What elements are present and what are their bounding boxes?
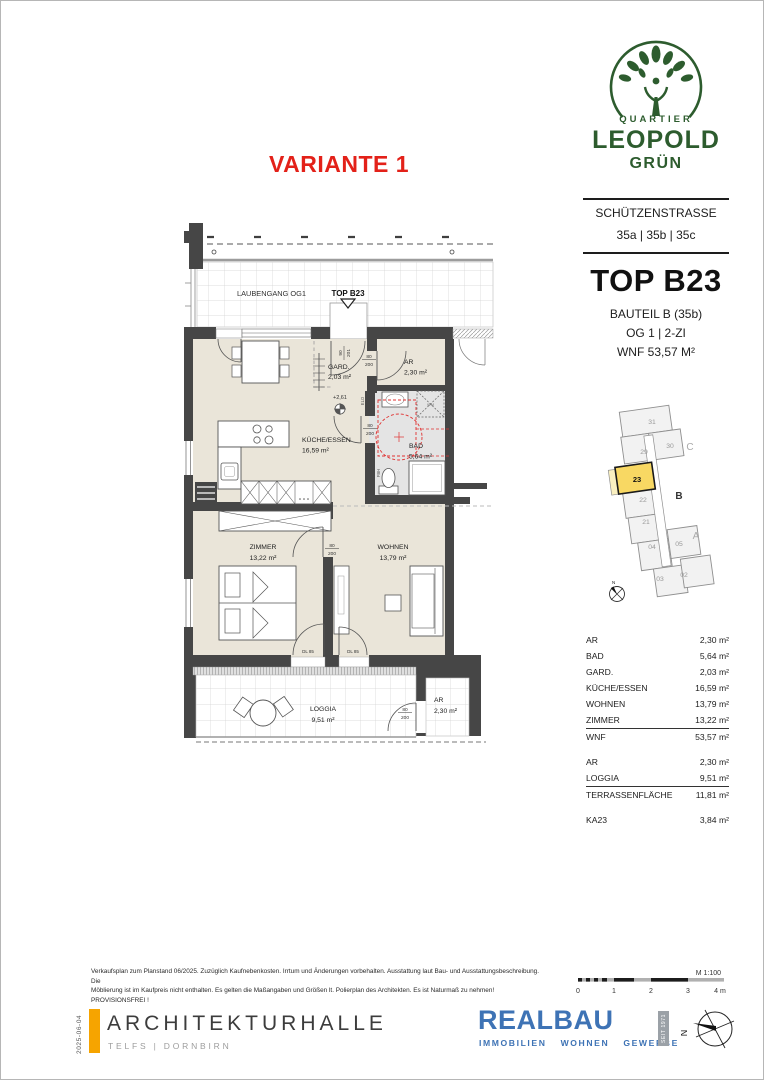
window-top (242, 329, 311, 337)
divider-top (583, 198, 729, 200)
zimmer-label: ZIMMER (250, 544, 277, 551)
entry-niche (330, 303, 367, 339)
logo-text-leopold: LEOPOLD (592, 126, 720, 154)
dl85-label-1: DL 85 (302, 649, 314, 654)
plan-date: 2025-06-04 (76, 1015, 83, 1054)
ar-bottom-area: 2,30 m² (434, 708, 458, 715)
logo-text-quartier: QUARTIER (619, 114, 693, 125)
level-label: +2,61 (333, 395, 347, 401)
svg-text:200: 200 (365, 362, 373, 368)
disclaimer-line-2: Möblierung ist im Kaufpreis nicht enthal… (91, 986, 543, 1005)
row-value: 2,30 m² (700, 632, 729, 648)
table-row: WOHNEN13,79 m² (586, 696, 729, 712)
row-value: 13,22 m² (695, 712, 729, 728)
row-label: LOGGIA (586, 770, 619, 786)
exterior-wall-top-left (184, 223, 203, 269)
row-label: WOHNEN (586, 696, 625, 712)
ar-top-label: AR (404, 359, 414, 366)
row-value: 5,64 m² (700, 648, 729, 664)
round-table-icon (250, 700, 276, 726)
street-name: SCHÜTZENSTRASSE (581, 206, 731, 220)
row-label: WNF (586, 729, 606, 745)
shower-icon (409, 461, 445, 495)
site-unit-05: 05 (675, 541, 683, 548)
svg-text:80: 80 (366, 354, 372, 360)
table-row: BAD5,64 m² (586, 648, 729, 664)
divider-bottom (583, 252, 729, 254)
architect-cities: TELFS | DORNBIRN (108, 1041, 232, 1051)
corridor-left-window (185, 269, 195, 327)
bad-area: 5,64 m² (409, 454, 433, 461)
table-row: AR2,30 m² (586, 754, 729, 770)
gard-area: 2,03 m² (328, 374, 352, 381)
table-row: ZIMMER13,22 m² (586, 712, 729, 729)
site-wing-b: B (675, 491, 682, 502)
site-wing-a: A (693, 531, 700, 542)
scale-tick-4: 4 m (714, 988, 726, 995)
realbau-tag-gewerbe: GEWERBE (623, 1038, 679, 1048)
svg-text:80: 80 (402, 707, 408, 713)
north-compass-icon: N (681, 1003, 745, 1059)
side-table-icon (385, 595, 401, 611)
scale-label: M 1:100 (696, 970, 721, 977)
row-value: 13,79 m² (695, 696, 729, 712)
unit-wnf: WNF 53,57 M² (581, 345, 731, 359)
row-label: TERRASSENFLÄCHE (586, 787, 672, 803)
unit-floor: OG 1 | 2-ZI (581, 326, 731, 340)
svg-text:200: 200 (328, 551, 336, 557)
loggia-area: 9,51 m² (311, 717, 335, 724)
unit-title: TOP B23 (581, 263, 731, 299)
table-row: GARD.2,03 m² (586, 664, 729, 680)
row-label: BAD (586, 648, 604, 664)
table-row-terrasse: TERRASSENFLÄCHE11,81 m² (586, 787, 729, 803)
site-north-icon: N (610, 580, 625, 602)
laubengang-label: LAUBENGANG OG1 (237, 289, 306, 298)
table-row: LOGGIA9,51 m² (586, 770, 729, 787)
scale-tick-2: 2 (649, 988, 653, 995)
row-value: 53,57 m² (695, 729, 729, 745)
site-unit-31: 31 (648, 419, 656, 426)
table-row-ka23: KA233,84 m² (586, 812, 729, 828)
svg-text:200: 200 (366, 431, 374, 437)
loggia-tiles (196, 675, 416, 737)
glass-front (193, 667, 416, 675)
realbau-logo: REALBAU (478, 1005, 614, 1036)
scale-tick-3: 3 (686, 988, 690, 995)
variant-title: VARIANTE 1 (269, 151, 409, 178)
dining-table-icon (242, 341, 279, 383)
plan-sheet: VARIANTE 1 QUARTIER LEOPOLD GRÜN SCHÜTZE… (0, 0, 764, 1080)
wm-label: WM (427, 403, 434, 407)
fbh-label: FBH (376, 469, 381, 477)
scale-tick-1: 1 (612, 988, 616, 995)
site-unit-30: 30 (666, 443, 674, 450)
site-key-plan: 31 30 29 23 22 21 04 05 03 02 C B A N (594, 397, 746, 609)
realbau-tagline: IMMOBILIEN WOHNEN GEWERBE (479, 1038, 679, 1048)
neighbor-door-swing (459, 339, 485, 365)
table-row: AR2,30 m² (586, 632, 729, 648)
ar-bottom-tiles (426, 678, 469, 736)
elo-label: ELO (360, 396, 365, 405)
wohnen-label: WOHNEN (378, 544, 409, 551)
row-value: 3,84 m² (700, 812, 729, 828)
compass-north-label: N (681, 1030, 689, 1037)
tree-icon (618, 46, 694, 117)
window-left-zimmer (184, 579, 193, 627)
architect-name: ARCHITEKTURHALLE (107, 1012, 387, 1036)
railing (197, 237, 493, 260)
row-label: ZIMMER (586, 712, 620, 728)
neighbor-wall-hatch (453, 329, 493, 338)
shaft-block (195, 482, 217, 503)
site-unit-03: 03 (656, 576, 664, 583)
row-value: 2,30 m² (700, 754, 729, 770)
seit-1971-tab: SEIT 1971 (658, 1011, 669, 1046)
row-label: KA23 (586, 812, 607, 828)
svg-text:200: 200 (401, 715, 409, 721)
street-numbers: 35a | 35b | 35c (581, 228, 731, 242)
row-label: AR (586, 632, 598, 648)
row-label: AR (586, 754, 598, 770)
realbau-tag-wohnen: WOHNEN (561, 1038, 610, 1048)
sink-icon (221, 463, 238, 480)
floor-plan: LAUBENGANG OG1 TOP B23 (171, 201, 516, 781)
unit-bauteil: BAUTEIL B (35b) (581, 307, 731, 321)
scale-bar: M 1:100 0 1 2 3 4 m (564, 957, 764, 999)
kueche-area: 16,59 m² (302, 448, 330, 455)
svg-text:201: 201 (346, 349, 352, 357)
site-unit-21: 21 (642, 519, 650, 526)
sofa-icon (410, 566, 443, 636)
bad-label: BAD (409, 443, 423, 450)
logo-text-gruen: GRÜN (629, 153, 682, 172)
realbau-tag-immobilien: IMMOBILIEN (479, 1038, 547, 1048)
row-value: 2,03 m² (700, 664, 729, 680)
kitchen-cabinets (241, 481, 331, 504)
row-value: 11,81 m² (696, 787, 729, 803)
gard-label: GARD. (328, 364, 350, 371)
svg-text:80: 80 (329, 543, 335, 549)
wohnen-area: 13,79 m² (380, 555, 408, 562)
ar-bottom-label: AR (434, 697, 444, 704)
site-unit-02: 02 (680, 572, 688, 579)
svg-text:90: 90 (338, 350, 344, 356)
entry-marker-label: TOP B23 (331, 289, 365, 298)
kueche-label: KÜCHE/ESSEN (302, 436, 351, 444)
orange-bar (89, 1009, 100, 1053)
loggia-label: LOGGIA (310, 706, 337, 713)
zimmer-area: 13,22 m² (250, 555, 278, 562)
site-unit-23: 23 (633, 475, 641, 484)
svg-text:80: 80 (367, 423, 373, 429)
scale-tick-0: 0 (576, 988, 580, 995)
building-outline (600, 403, 714, 602)
disclaimer-text: Verkaufsplan zum Planstand 06/2025. Zuzü… (91, 967, 543, 1005)
dl85-label-2: DL 85 (347, 649, 359, 654)
cabinet-icon (334, 566, 349, 634)
table-row: KÜCHE/ESSEN16,59 m² (586, 680, 729, 696)
row-value: 16,59 m² (695, 680, 729, 696)
site-unit-22: 22 (639, 497, 647, 504)
row-label: GARD. (586, 664, 613, 680)
site-unit-29: 29 (640, 449, 648, 456)
area-table: AR2,30 m² BAD5,64 m² GARD.2,03 m² KÜCHE/… (586, 632, 729, 828)
bed-icon (219, 566, 296, 640)
quartier-leopold-gruen-logo: QUARTIER LEOPOLD GRÜN (586, 37, 736, 182)
row-label: KÜCHE/ESSEN (586, 680, 648, 696)
seit-1971-label: SEIT 1971 (661, 1014, 667, 1043)
entry-door2-opening (216, 329, 242, 338)
site-wing-c: C (686, 442, 693, 453)
site-unit-04: 04 (648, 544, 656, 551)
ar-top-area: 2,30 m² (404, 370, 428, 377)
window-left-kitchen (184, 441, 193, 475)
table-row-wnf: WNF53,57 m² (586, 729, 729, 745)
site-north-label: N (612, 580, 615, 585)
disclaimer-line-1: Verkaufsplan zum Planstand 06/2025. Zuzü… (91, 967, 543, 986)
row-value: 9,51 m² (700, 770, 729, 786)
loggia-ar-opening (416, 701, 426, 733)
